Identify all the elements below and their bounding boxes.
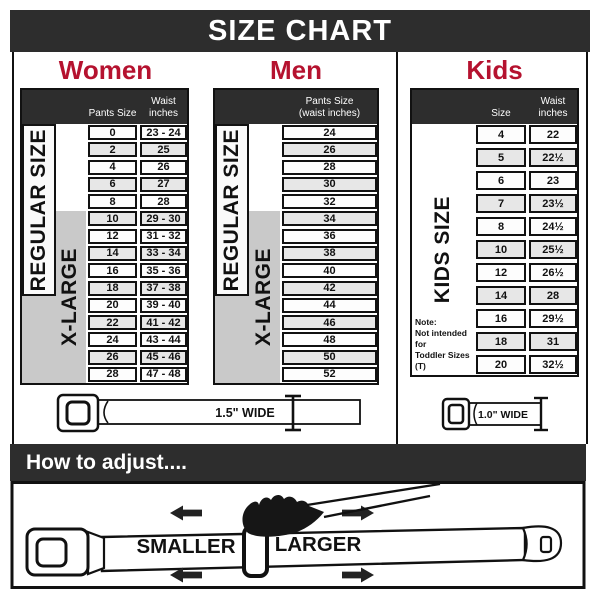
men-regular-range-box: REGULAR SIZE: [215, 124, 249, 296]
kid-size-cell: 12: [476, 263, 526, 282]
kid-waist-cell: 32½: [529, 355, 577, 374]
women-table-row: 4 26: [88, 160, 187, 175]
men-table-row: 34: [282, 211, 377, 226]
women-xlarge-label: X-LARGE: [58, 248, 82, 346]
pants-size-waist-cell: 30: [282, 177, 377, 192]
pants-size-cell: 20: [88, 298, 137, 313]
men-table-row: 24: [282, 125, 377, 140]
kid-size-cell: 4: [476, 125, 526, 144]
waist-inches-cell: 37 - 38: [140, 281, 187, 296]
kids-table-body: KIDS SIZE Note: Not intended for Toddler…: [412, 124, 577, 375]
waist-inches-cell: 35 - 36: [140, 263, 187, 278]
kid-size-cell: 6: [476, 171, 526, 190]
kids-waist-header: Waist inches: [529, 90, 577, 124]
kid-waist-cell: 25½: [529, 240, 577, 259]
kid-waist-cell: 23½: [529, 194, 577, 213]
how-to-adjust-title: How to adjust....: [26, 451, 187, 475]
page-title: SIZE CHART: [208, 15, 392, 48]
men-xlarge-label: X-LARGE: [252, 248, 276, 346]
waist-inches-cell: 47 - 48: [140, 367, 187, 382]
pants-size-waist-cell: 44: [282, 298, 377, 313]
kids-table-header: Size Waist inches: [412, 90, 577, 124]
waist-inches-cell: 25: [140, 142, 187, 157]
title-bar: SIZE CHART: [10, 10, 590, 52]
pants-size-waist-cell: 42: [282, 281, 377, 296]
kid-size-cell: 10: [476, 240, 526, 259]
men-label-column: X-LARGE REGULAR SIZE: [215, 124, 280, 383]
pants-size-cell: 12: [88, 229, 137, 244]
pants-size-cell: 6: [88, 177, 137, 192]
kid-size-cell: 5: [476, 148, 526, 167]
men-regular-label: REGULAR SIZE: [220, 129, 244, 291]
kid-waist-cell: 22: [529, 125, 577, 144]
kids-table-row: 5 22½: [476, 148, 577, 167]
women-table-row: 6 27: [88, 177, 187, 192]
pants-size-waist-cell: 50: [282, 350, 377, 365]
pants-size-waist-cell: 26: [282, 142, 377, 157]
men-table-row: 48: [282, 332, 377, 347]
men-table-row: 42: [282, 281, 377, 296]
waist-inches-cell: 26: [140, 160, 187, 175]
women-table-row: 10 29 - 30: [88, 211, 187, 226]
pants-size-cell: 22: [88, 315, 137, 330]
kid-size-cell: 20: [476, 355, 526, 374]
women-table-row: 18 37 - 38: [88, 281, 187, 296]
men-table-row: 32: [282, 194, 377, 209]
women-table-row: 22 41 - 42: [88, 315, 187, 330]
pants-size-cell: 26: [88, 350, 137, 365]
how-to-adjust-bar: How to adjust....: [10, 444, 586, 481]
kids-belt-width-label: 1.0" WIDE: [478, 409, 528, 421]
kids-table-row: 10 25½: [476, 240, 577, 259]
women-table-row: 12 31 - 32: [88, 229, 187, 244]
adjust-belt-illustration: SMALLER LARGER: [10, 481, 586, 589]
kids-table-row: 7 23½: [476, 194, 577, 213]
kid-waist-cell: 24½: [529, 217, 577, 236]
pants-size-cell: 28: [88, 367, 137, 382]
women-waist-header: Waist inches: [140, 90, 187, 124]
waist-inches-cell: 31 - 32: [140, 229, 187, 244]
waist-inches-cell: 41 - 42: [140, 315, 187, 330]
pants-size-waist-cell: 32: [282, 194, 377, 209]
waist-inches-cell: 27: [140, 177, 187, 192]
adult-belt-width-label: 1.5" WIDE: [215, 406, 274, 420]
kids-table-row: 14 28: [476, 286, 577, 305]
women-table-body: X-LARGE REGULAR SIZE 0 23 - 24 2 25: [22, 124, 187, 383]
men-rows: 24 26 28 30 32: [282, 125, 377, 382]
men-table-row: 36: [282, 229, 377, 244]
kids-belt-illustration: 1.0" WIDE: [398, 388, 590, 444]
kid-size-cell: 7: [476, 194, 526, 213]
waist-inches-cell: 39 - 40: [140, 298, 187, 313]
pants-size-waist-cell: 28: [282, 160, 377, 175]
kid-waist-cell: 23: [529, 171, 577, 190]
kids-table-row: 4 22: [476, 125, 577, 144]
kids-note: Note: Not intended for Toddler Sizes (T): [415, 317, 475, 372]
waist-inches-cell: 33 - 34: [140, 246, 187, 261]
larger-label: LARGER: [275, 533, 362, 556]
women-table-row: 0 23 - 24: [88, 125, 187, 140]
women-table-row: 28 47 - 48: [88, 367, 187, 382]
men-table-row: 52: [282, 367, 377, 382]
men-table-row: 44: [282, 298, 377, 313]
women-rows: 0 23 - 24 2 25 4 26 6 2: [88, 125, 187, 382]
women-table-row: 2 25: [88, 142, 187, 157]
pants-size-waist-cell: 38: [282, 246, 377, 261]
belt-tip-icon: [523, 526, 561, 561]
kid-waist-cell: 26½: [529, 263, 577, 282]
women-regular-range-box: REGULAR SIZE: [22, 124, 56, 296]
men-table-row: 40: [282, 263, 377, 278]
seatbelt-buckle-icon: [27, 529, 104, 575]
kids-table-row: 20 32½: [476, 355, 577, 374]
women-table-row: 24 43 - 44: [88, 332, 187, 347]
women-table-row: 20 39 - 40: [88, 298, 187, 313]
men-pants-size-header: Pants Size (waist inches): [282, 90, 377, 124]
pants-size-waist-cell: 40: [282, 263, 377, 278]
smaller-label: SMALLER: [136, 535, 235, 558]
kid-size-cell: 16: [476, 309, 526, 328]
pants-size-waist-cell: 46: [282, 315, 377, 330]
pants-size-waist-cell: 48: [282, 332, 377, 347]
kids-size-table: Size Waist inches KIDS SIZE Note: Not in…: [410, 88, 579, 377]
men-size-table: Pants Size (waist inches) X-LARGE REGULA…: [213, 88, 379, 385]
men-table-row: 30: [282, 177, 377, 192]
kids-table-row: 12 26½: [476, 263, 577, 282]
men-section-title: Men: [215, 53, 377, 87]
women-table-row: 8 28: [88, 194, 187, 209]
waist-inches-cell: 29 - 30: [140, 211, 187, 226]
pants-size-cell: 10: [88, 211, 137, 226]
pants-size-cell: 18: [88, 281, 137, 296]
women-table-row: 16 35 - 36: [88, 263, 187, 278]
kid-waist-cell: 29½: [529, 309, 577, 328]
left-border-line: [12, 52, 14, 444]
men-table-row: 28: [282, 160, 377, 175]
men-table-body: X-LARGE REGULAR SIZE 24 26: [215, 124, 377, 383]
pants-size-waist-cell: 34: [282, 211, 377, 226]
pants-size-cell: 0: [88, 125, 137, 140]
women-table-row: 14 33 - 34: [88, 246, 187, 261]
pants-size-waist-cell: 36: [282, 229, 377, 244]
women-label-column: X-LARGE REGULAR SIZE: [22, 124, 86, 383]
kids-table-row: 8 24½: [476, 217, 577, 236]
men-table-row: 38: [282, 246, 377, 261]
pants-size-waist-cell: 52: [282, 367, 377, 382]
kids-label-column: KIDS SIZE Note: Not intended for Toddler…: [412, 124, 474, 375]
pants-size-cell: 16: [88, 263, 137, 278]
men-table-row: 26: [282, 142, 377, 157]
pants-size-waist-cell: 24: [282, 125, 377, 140]
kids-table-row: 16 29½: [476, 309, 577, 328]
women-table-row: 26 45 - 46: [88, 350, 187, 365]
right-border-line: [586, 52, 588, 444]
pants-size-cell: 4: [88, 160, 137, 175]
kids-table-row: 6 23: [476, 171, 577, 190]
kids-table-row: 18 31: [476, 332, 577, 351]
men-table-header: Pants Size (waist inches): [215, 90, 377, 124]
kid-size-cell: 8: [476, 217, 526, 236]
kid-size-cell: 18: [476, 332, 526, 351]
pants-size-cell: 8: [88, 194, 137, 209]
kids-rows: 4 22 5 22½ 6 23 7 23½: [476, 125, 577, 374]
size-chart-page: SIZE CHART Women Men Kids Pants Size Wai…: [0, 0, 600, 600]
women-section-title: Women: [22, 53, 189, 87]
kid-size-cell: 14: [476, 286, 526, 305]
waist-inches-cell: 23 - 24: [140, 125, 187, 140]
kid-waist-cell: 31: [529, 332, 577, 351]
kid-waist-cell: 22½: [529, 148, 577, 167]
women-regular-label: REGULAR SIZE: [27, 129, 51, 291]
pants-size-cell: 14: [88, 246, 137, 261]
adult-belt-illustration: 1.5" WIDE: [12, 388, 396, 444]
women-size-table: Pants Size Waist inches X-LARGE REGULAR …: [20, 88, 189, 385]
kids-section-title: Kids: [412, 53, 577, 87]
women-pants-size-header: Pants Size: [88, 90, 137, 124]
men-table-row: 50: [282, 350, 377, 365]
pants-size-cell: 2: [88, 142, 137, 157]
kids-size-header: Size: [476, 90, 526, 124]
women-table-header: Pants Size Waist inches: [22, 90, 187, 124]
kid-waist-cell: 28: [529, 286, 577, 305]
waist-inches-cell: 28: [140, 194, 187, 209]
kids-size-label: KIDS SIZE: [431, 196, 455, 303]
men-kids-divider: [396, 52, 398, 444]
pants-size-cell: 24: [88, 332, 137, 347]
waist-inches-cell: 45 - 46: [140, 350, 187, 365]
men-table-row: 46: [282, 315, 377, 330]
waist-inches-cell: 43 - 44: [140, 332, 187, 347]
